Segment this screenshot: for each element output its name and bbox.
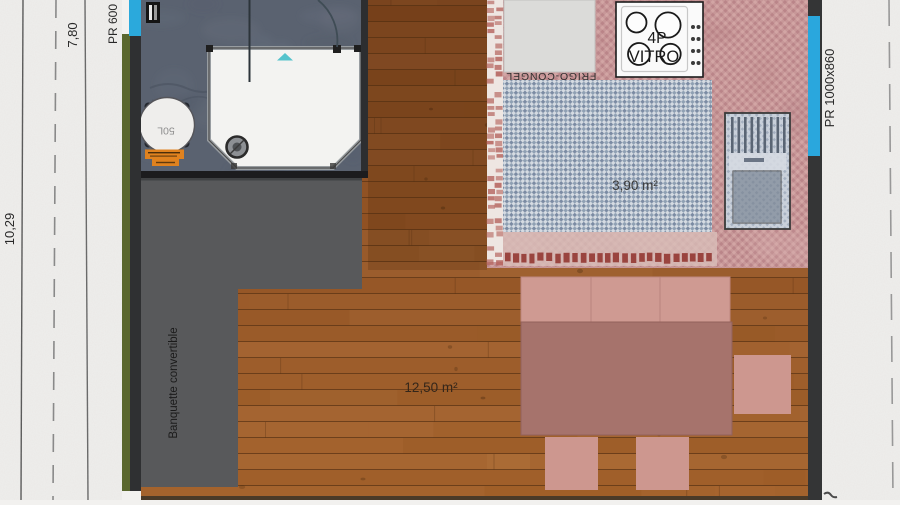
svg-text:12,50 m²: 12,50 m² (404, 380, 458, 395)
svg-text:3,90 m²: 3,90 m² (612, 178, 658, 193)
svg-text:4P: 4P (648, 30, 667, 47)
svg-text:FRIGO-CONGEL: FRIGO-CONGEL (506, 70, 597, 82)
svg-text:VITRO: VITRO (629, 48, 680, 66)
svg-text:Banquette convertible: Banquette convertible (168, 327, 180, 438)
svg-text:50L: 50L (157, 125, 175, 137)
